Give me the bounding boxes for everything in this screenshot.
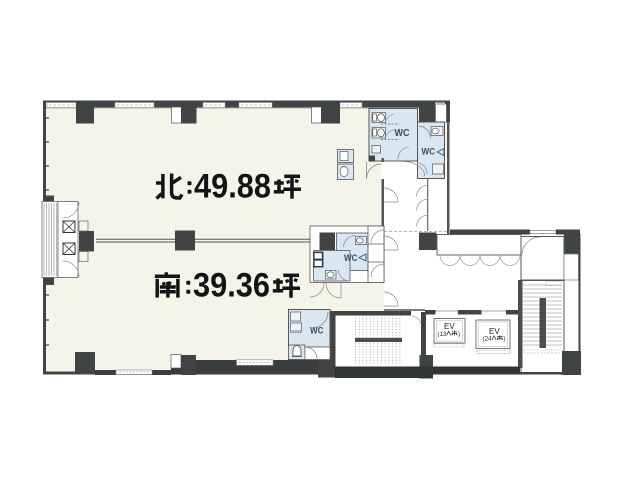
svg-text:(13: (13 (438, 332, 447, 338)
svg-text:WC: WC (395, 127, 410, 139)
svg-text:EV: EV (444, 322, 455, 331)
svg-text:WC: WC (344, 253, 358, 263)
svg-text:(24: (24 (483, 336, 492, 342)
svg-text:): ) (458, 332, 460, 338)
svg-text:EV: EV (489, 327, 500, 336)
svg-text:49.88: 49.88 (194, 168, 271, 206)
svg-text:39.36: 39.36 (193, 267, 270, 305)
svg-text:): ) (503, 336, 505, 342)
svg-text:WC: WC (422, 147, 436, 157)
